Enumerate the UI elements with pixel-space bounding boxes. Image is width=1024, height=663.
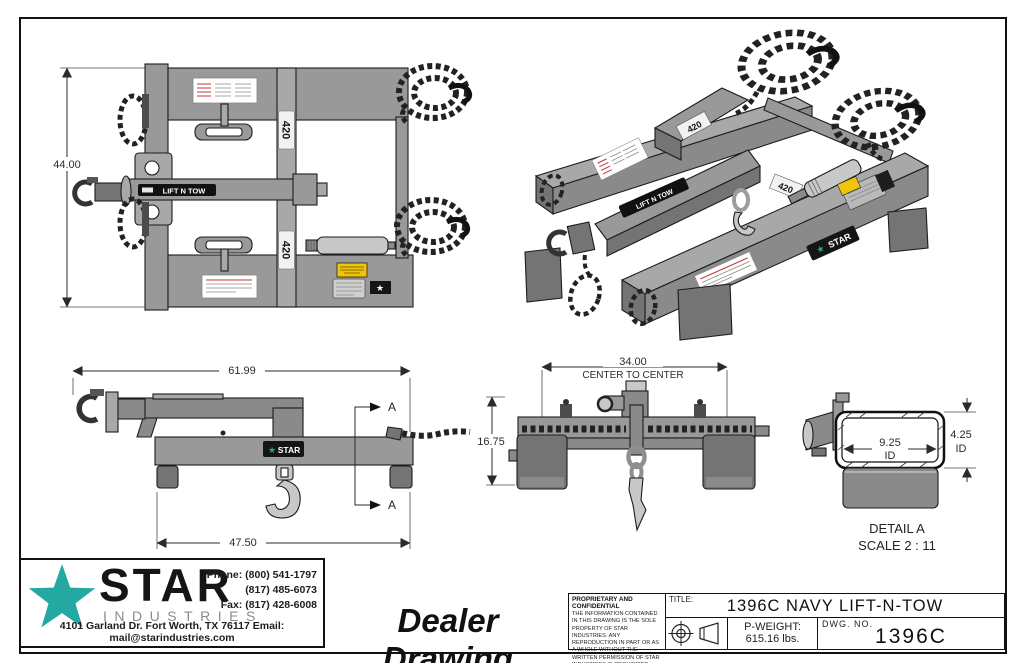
detail-scale: SCALE 2 : 11 xyxy=(858,538,936,553)
plan-mount-hole-top xyxy=(145,161,159,175)
side-base-dimension: 47.50 xyxy=(157,492,410,549)
plan-pin-top xyxy=(221,104,228,126)
plan-right-rail xyxy=(396,117,408,258)
projection-cell xyxy=(666,618,728,649)
svg-text:420: 420 xyxy=(280,241,292,259)
plan-handle-top-slot xyxy=(206,128,242,136)
iso-leg-center xyxy=(678,284,732,340)
isometric-view: 420 LIFT N TOW ★ STAR xyxy=(525,25,928,340)
svg-text:47.50: 47.50 xyxy=(229,537,257,549)
pweight-value: 615.16 lbs. xyxy=(728,633,817,645)
svg-text:420: 420 xyxy=(280,121,292,139)
side-view: ★ STAR A xyxy=(73,362,470,549)
iso-chain-coil-rear xyxy=(737,25,841,98)
plan-pin-bottom xyxy=(221,249,228,271)
front-pocket-left-band xyxy=(520,477,564,487)
plan-chain-coil-top xyxy=(399,66,470,118)
front-pocket-right-band xyxy=(706,477,752,487)
iso-chain-front-left xyxy=(566,272,605,319)
plan-pintle-hook xyxy=(75,182,92,204)
plan-pintle-latch xyxy=(87,177,98,183)
svg-text:4.25: 4.25 xyxy=(950,429,971,441)
dwg-cell: DWG. NO. 1396C xyxy=(818,618,1004,649)
plan-420-label-top: 420 xyxy=(279,111,295,149)
side-grab-hook xyxy=(386,427,402,440)
svg-text:ID: ID xyxy=(885,450,896,462)
front-tpin-right xyxy=(694,404,706,418)
svg-text:44.00: 44.00 xyxy=(53,159,81,171)
dwg-number: 1396C xyxy=(818,625,1004,649)
pweight-cell: P-WEIGHT: 615.16 lbs. xyxy=(728,618,818,649)
front-pinhead-right xyxy=(697,399,703,405)
third-angle-projection-icon xyxy=(666,618,726,649)
svg-text:61.99: 61.99 xyxy=(228,365,256,377)
front-grab-hook-right xyxy=(755,426,769,436)
logo-contact: Phone: (800) 541-1797 (817) 485-6073 Fax… xyxy=(207,568,317,614)
front-tpin-left xyxy=(560,404,572,418)
side-chain xyxy=(402,431,470,435)
pweight-label: P-WEIGHT: xyxy=(728,621,817,633)
svg-text:CENTER TO CENTER: CENTER TO CENTER xyxy=(582,370,683,381)
detail-a-view: 9.25 ID 4.25 ID DETAIL A SCALE 2 : 11 xyxy=(803,393,976,553)
proprietary-cell: PROPRIETARY AND CONFIDENTIAL THE INFORMA… xyxy=(569,594,666,649)
title-cell: TITLE: 1396C NAVY LIFT-N-TOW xyxy=(666,594,1004,618)
side-boom-head xyxy=(273,408,303,440)
side-pin-dot xyxy=(221,431,226,436)
drawing-sheet: ★ 420 420 LIFT N TOW xyxy=(0,0,1024,663)
plan-handle-bottom-slot xyxy=(206,241,242,249)
iso-chain-coil-right xyxy=(830,83,928,155)
plan-star-badge: ★ xyxy=(370,281,391,294)
svg-text:16.75: 16.75 xyxy=(477,436,505,448)
proprietary-heading: PROPRIETARY AND CONFIDENTIAL xyxy=(572,596,662,610)
side-pocket-right xyxy=(390,466,412,488)
iso-leg-right xyxy=(888,208,928,252)
section-marker-bottom: A xyxy=(388,498,396,512)
star-icon: ★ xyxy=(376,283,384,293)
logo-address: 4101 Garland Dr. Fort Worth, TX 76117 Em… xyxy=(21,620,323,644)
side-overall-dimension: 61.99 xyxy=(73,362,410,432)
front-hook xyxy=(629,447,647,530)
plan-cylinder xyxy=(306,237,395,254)
side-boom-step xyxy=(153,394,223,399)
fax-line: Fax: (817) 428-6008 xyxy=(207,598,317,613)
plan-caution-label xyxy=(337,263,367,277)
star-icon: ★ xyxy=(268,445,276,455)
plan-tpin-top xyxy=(142,94,149,128)
front-width-dimension: 34.00 CENTER TO CENTER xyxy=(542,355,727,381)
phone-line-1: Phone: (800) 541-1797 xyxy=(207,568,317,583)
title-block: PROPRIETARY AND CONFIDENTIAL THE INFORMA… xyxy=(568,593,1005,650)
plan-boom-cross-block xyxy=(293,174,317,205)
detail-height-dimension: 4.25 ID xyxy=(944,398,976,482)
plan-boom-label: LIFT N TOW xyxy=(138,184,216,196)
front-height-dimension: 16.75 xyxy=(470,397,515,485)
plan-420-label-bottom: 420 xyxy=(279,231,295,269)
plan-warning-label-bottom xyxy=(202,275,257,298)
plan-tpin-bottom xyxy=(142,202,149,236)
plan-boom-nub xyxy=(317,183,327,196)
side-brace xyxy=(137,418,157,437)
side-hook xyxy=(266,465,300,518)
plan-data-plate xyxy=(333,279,365,298)
front-view: 34.00 CENTER TO CENTER 16.75 xyxy=(470,355,769,530)
svg-text:LIFT N TOW: LIFT N TOW xyxy=(163,187,207,196)
drawing-title: 1396C NAVY LIFT-N-TOW xyxy=(666,597,1004,616)
detail-block xyxy=(843,468,938,508)
side-pintle-hook xyxy=(79,389,145,432)
logo-box: STAR INDUSTRIES Phone: (800) 541-1797 (8… xyxy=(19,558,325,648)
plan-view: ★ 420 420 LIFT N TOW xyxy=(47,64,470,310)
svg-text:STAR: STAR xyxy=(278,445,301,455)
drawing-type-text: Dealer Drawing xyxy=(328,602,568,663)
plan-warning-label-top xyxy=(193,78,257,103)
detail-caption: DETAIL A xyxy=(869,521,925,536)
svg-text:9.25: 9.25 xyxy=(879,437,900,449)
proprietary-body: THE INFORMATION CONTAINED IN THIS DRAWIN… xyxy=(572,611,662,663)
svg-text:34.00: 34.00 xyxy=(619,356,647,368)
front-stub-left xyxy=(509,450,517,461)
phone-line-2: (817) 485-6073 xyxy=(207,583,317,598)
svg-text:ID: ID xyxy=(956,443,967,455)
side-pocket-left xyxy=(157,466,178,488)
front-pinhead-left xyxy=(563,399,569,405)
section-marker-top: A xyxy=(388,400,396,414)
side-star-badge: ★ STAR xyxy=(263,441,304,457)
